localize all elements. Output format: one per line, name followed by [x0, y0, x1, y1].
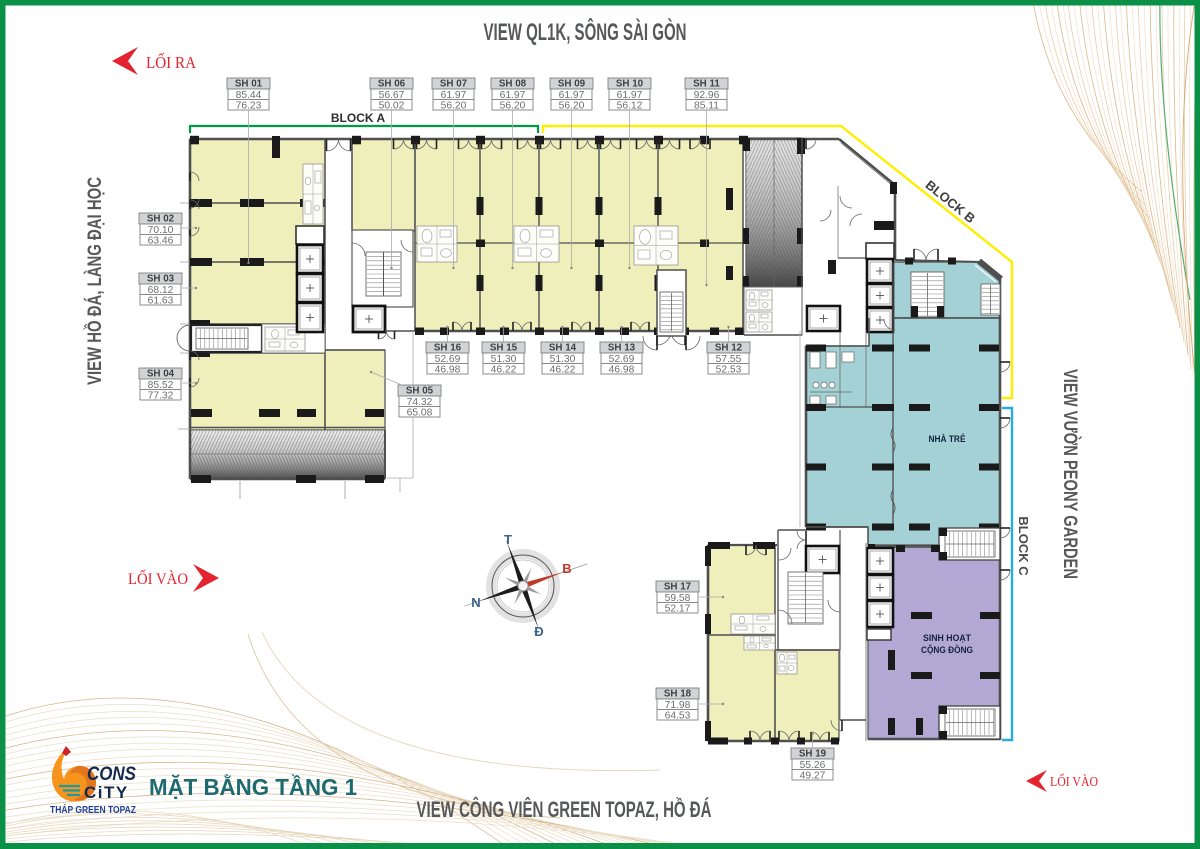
svg-text:46.98: 46.98	[435, 364, 461, 375]
svg-text:61.97: 61.97	[441, 90, 467, 101]
svg-text:61.97: 61.97	[500, 90, 526, 101]
svg-text:61.63: 61.63	[148, 295, 174, 306]
svg-text:MẶT BẰNG TẦNG 1: MẶT BẰNG TẦNG 1	[149, 773, 357, 800]
svg-text:59.58: 59.58	[665, 593, 691, 604]
svg-text:SH 02: SH 02	[147, 214, 175, 225]
svg-text:SH 10: SH 10	[616, 79, 644, 90]
svg-text:BLOCK C: BLOCK C	[1016, 516, 1031, 576]
svg-text:SH 03: SH 03	[147, 274, 175, 285]
svg-text:SH 16: SH 16	[434, 343, 462, 354]
svg-text:70.10: 70.10	[148, 225, 174, 236]
svg-text:56.12: 56.12	[617, 100, 643, 111]
svg-text:LỐI VÀO: LỐI VÀO	[1050, 774, 1098, 789]
svg-text:51.30: 51.30	[491, 354, 517, 365]
svg-text:SH 04: SH 04	[147, 369, 175, 380]
svg-text:SINH HOẠT: SINH HOẠT	[923, 633, 971, 644]
svg-text:SH 12: SH 12	[715, 343, 743, 354]
svg-text:64.53: 64.53	[665, 710, 691, 721]
svg-text:61.97: 61.97	[559, 90, 585, 101]
svg-text:CiTY: CiTY	[84, 783, 129, 802]
svg-text:68.12: 68.12	[148, 285, 174, 296]
svg-text:56.67: 56.67	[379, 90, 405, 101]
svg-text:SH 07: SH 07	[440, 79, 468, 90]
svg-text:57.55: 57.55	[716, 354, 742, 365]
svg-text:SH 11: SH 11	[693, 79, 720, 90]
svg-text:SH 06: SH 06	[378, 79, 406, 90]
svg-text:56.20: 56.20	[441, 100, 467, 111]
svg-text:52.17: 52.17	[665, 603, 691, 614]
svg-text:77.32: 77.32	[148, 390, 174, 401]
svg-text:92.96: 92.96	[694, 90, 720, 101]
svg-text:85.44: 85.44	[236, 90, 262, 101]
svg-text:BLOCK A: BLOCK A	[331, 111, 386, 125]
svg-text:VIEW HỒ ĐÁ, LÀNG ĐẠI HỌC: VIEW HỒ ĐÁ, LÀNG ĐẠI HỌC	[84, 177, 106, 385]
svg-text:SH 13: SH 13	[608, 343, 636, 354]
svg-text:76.23: 76.23	[236, 100, 262, 111]
svg-text:52.69: 52.69	[609, 354, 635, 365]
svg-text:49.27: 49.27	[800, 770, 826, 781]
svg-text:46.22: 46.22	[550, 364, 576, 375]
svg-text:55.26: 55.26	[800, 760, 826, 771]
svg-text:LỐI RA: LỐI RA	[146, 53, 196, 72]
svg-text:SH 01: SH 01	[235, 79, 263, 90]
svg-text:SH 14: SH 14	[549, 343, 577, 354]
svg-text:CỘNG ĐỒNG: CỘNG ĐỒNG	[921, 644, 973, 656]
svg-text:VIEW VƯỜN PEONY GARDEN: VIEW VƯỜN PEONY GARDEN	[1059, 369, 1081, 579]
svg-text:THÁP GREEN TOPAZ: THÁP GREEN TOPAZ	[50, 803, 136, 816]
svg-text:VIEW CÔNG VIÊN GREEN TOPAZ, HỒ: VIEW CÔNG VIÊN GREEN TOPAZ, HỒ ĐÁ	[417, 797, 712, 822]
svg-text:46.98: 46.98	[609, 364, 635, 375]
svg-text:52.53: 52.53	[716, 364, 742, 375]
svg-text:NHÀ TRẺ: NHÀ TRẺ	[929, 433, 966, 444]
svg-text:46.22: 46.22	[491, 364, 517, 375]
svg-text:74.32: 74.32	[407, 397, 433, 408]
svg-text:CONS: CONS	[87, 764, 136, 785]
svg-text:SH 05: SH 05	[406, 386, 434, 397]
svg-text:65.08: 65.08	[407, 407, 433, 418]
svg-text:61.97: 61.97	[617, 90, 643, 101]
svg-text:52.69: 52.69	[435, 354, 461, 365]
svg-text:LỐI VÀO: LỐI VÀO	[128, 569, 188, 588]
svg-text:N: N	[471, 595, 480, 610]
svg-text:51.30: 51.30	[550, 354, 576, 365]
svg-text:85.52: 85.52	[148, 380, 174, 391]
svg-text:63.46: 63.46	[148, 235, 174, 246]
svg-text:71.98: 71.98	[665, 700, 691, 711]
svg-text:VIEW QL1K, SÔNG SÀI GÒN: VIEW QL1K, SÔNG SÀI GÒN	[484, 18, 687, 46]
svg-text:SH 08: SH 08	[499, 79, 527, 90]
svg-text:50.02: 50.02	[379, 100, 405, 111]
svg-text:SH 19: SH 19	[799, 749, 827, 760]
svg-text:B: B	[562, 561, 571, 576]
svg-text:T: T	[504, 532, 512, 547]
svg-text:SH 18: SH 18	[664, 689, 692, 700]
svg-text:85.11: 85.11	[694, 100, 719, 111]
svg-text:SH 15: SH 15	[490, 343, 518, 354]
svg-text:56.20: 56.20	[559, 100, 585, 111]
svg-text:SH 09: SH 09	[558, 79, 586, 90]
svg-text:Đ: Đ	[534, 624, 543, 639]
svg-text:56.20: 56.20	[500, 100, 526, 111]
svg-text:SH 17: SH 17	[664, 582, 692, 593]
